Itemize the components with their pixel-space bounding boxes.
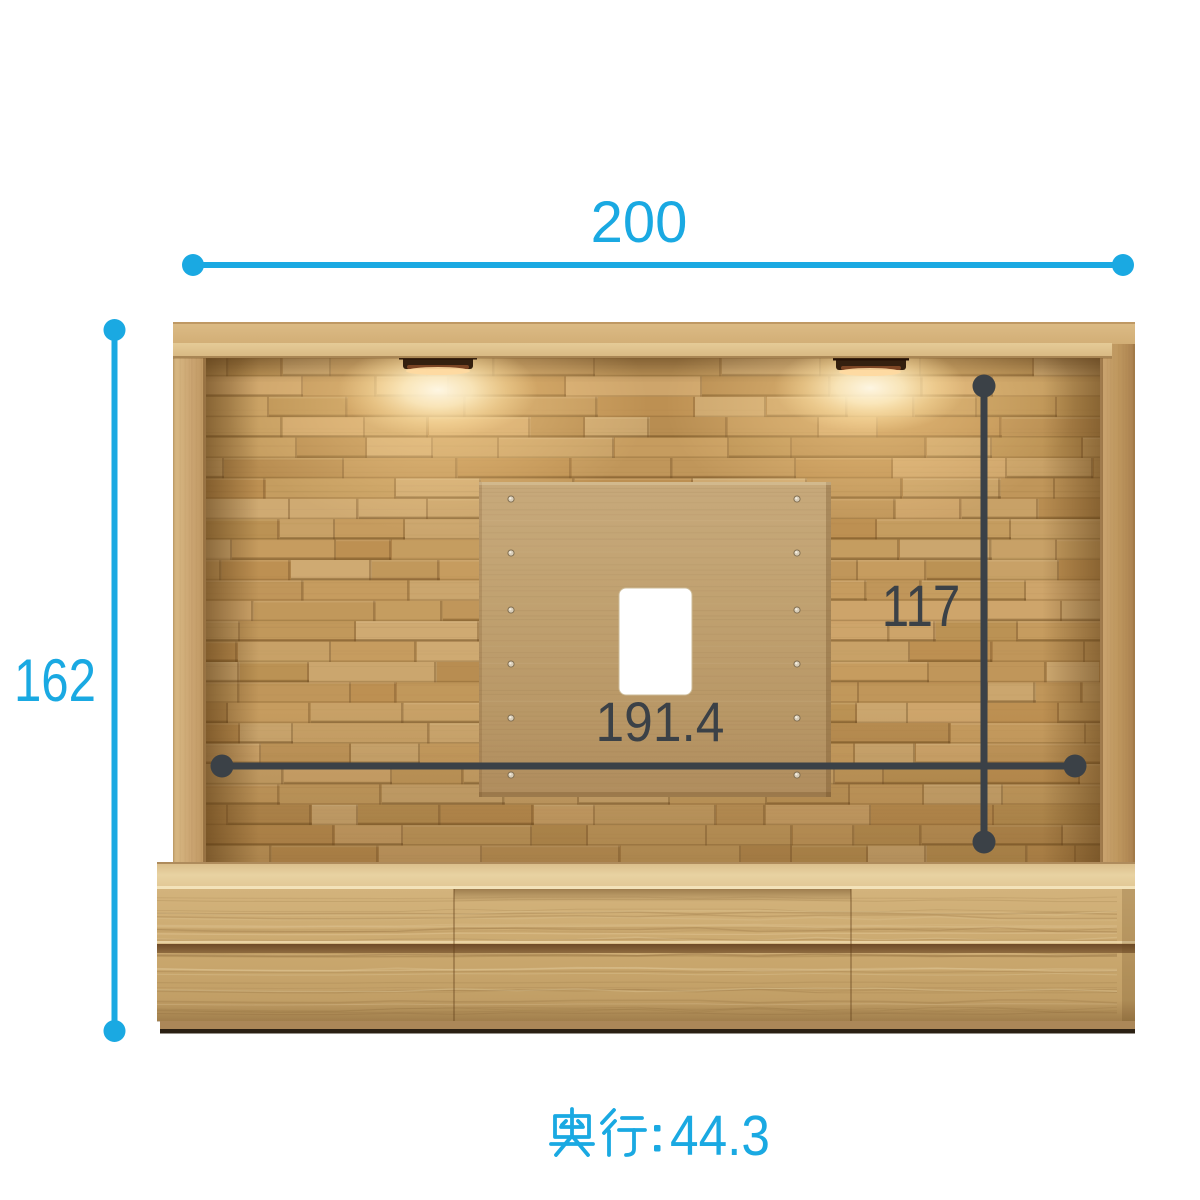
- svg-text:44.3: 44.3: [670, 1104, 770, 1163]
